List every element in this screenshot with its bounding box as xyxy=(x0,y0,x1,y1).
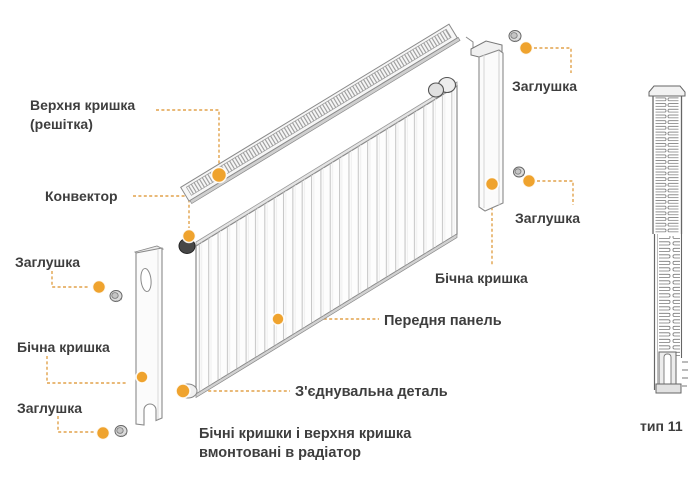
leader-convector xyxy=(133,196,189,228)
leader-top-cover xyxy=(156,110,219,166)
dot-convector xyxy=(183,230,196,243)
dot-side-cover-right xyxy=(486,178,499,191)
dot-plug-left-bottom xyxy=(97,427,110,440)
dot-connector xyxy=(176,384,190,398)
label-side-cover-left: Бічна кришка xyxy=(17,338,110,357)
plug-icon-right-top xyxy=(509,31,521,43)
dot-plug-right-top xyxy=(520,42,533,55)
label-top-cover-line2: (решітка) xyxy=(30,115,135,134)
plug-icon-left-top xyxy=(110,291,122,303)
leader-plug-right-top xyxy=(534,48,571,73)
label-front-panel: Передня панель xyxy=(384,312,502,331)
dot-plug-left-top xyxy=(93,281,106,294)
label-plug-left-bottom: Заглушка xyxy=(17,399,82,418)
assembly-note-line1: Бічні кришки і верхня кришка xyxy=(199,425,411,444)
plug-icon-right-bottom xyxy=(514,167,525,178)
label-side-cover-right: Бічна кришка xyxy=(435,269,528,288)
label-plug-left-top: Заглушка xyxy=(15,253,80,272)
assembly-note: Бічні кришки і верхня кришка вмонтовані … xyxy=(199,425,411,463)
assembly-note-line2: вмонтовані в радіатор xyxy=(199,444,411,463)
dot-plug-right-bottom xyxy=(523,175,536,188)
label-top-cover-line1: Верхня кришка xyxy=(30,96,135,115)
label-plug-right-bottom: Заглушка xyxy=(515,209,580,228)
label-plug-right-top: Заглушка xyxy=(512,77,577,96)
leader-plug-left-top xyxy=(52,271,90,287)
plug-icon-left-bottom xyxy=(115,426,127,438)
leader-plug-right-bottom xyxy=(537,181,573,205)
label-connector: З'єднувальна деталь xyxy=(295,383,448,402)
cross-section-type11 xyxy=(649,86,688,393)
side-cover-left-part xyxy=(135,246,163,425)
dot-top-grille xyxy=(212,168,227,183)
dot-front-panel xyxy=(272,313,284,325)
dot-side-cover-left xyxy=(136,371,148,383)
type-label: тип 11 xyxy=(640,417,683,436)
label-convector: Конвектор xyxy=(45,187,118,206)
leader-side-cover-left xyxy=(47,356,127,383)
radiator-assembly-diagram: Верхня кришка (решітка) Конвектор Заглуш… xyxy=(0,0,700,500)
top-right-bushing-inner xyxy=(429,83,444,97)
label-top-cover: Верхня кришка (решітка) xyxy=(30,96,135,134)
leader-plug-left-bottom xyxy=(58,416,94,432)
